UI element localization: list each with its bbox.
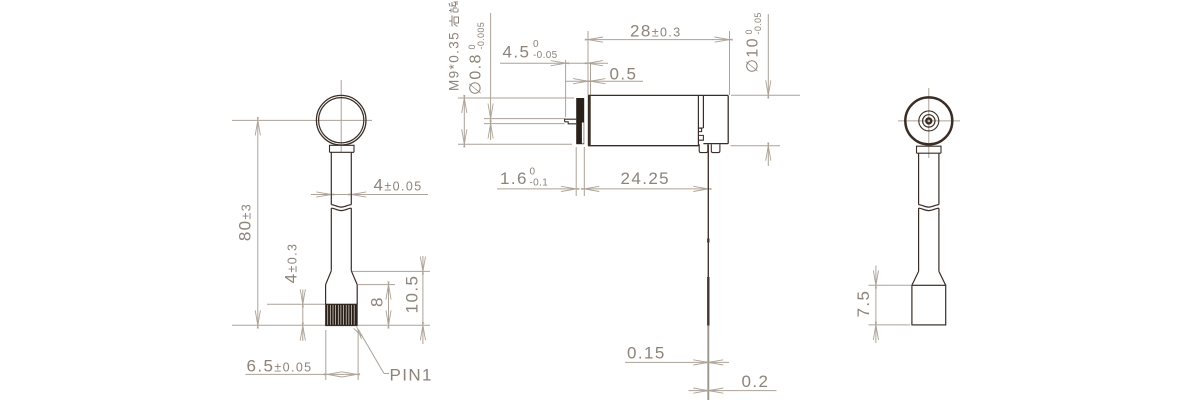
svg-text:0.5: 0.5 xyxy=(610,65,638,84)
svg-text:8: 8 xyxy=(367,296,386,307)
svg-text:4±0.3: 4±0.3 xyxy=(281,243,300,284)
svg-text:80±3: 80±3 xyxy=(236,203,255,241)
svg-text:∅10: ∅10 xyxy=(745,37,762,73)
svg-text:∅0.8: ∅0.8 xyxy=(468,53,485,95)
svg-text:0: 0 xyxy=(533,39,539,50)
svg-text:-0.1: -0.1 xyxy=(530,178,549,189)
svg-text:7.5: 7.5 xyxy=(854,290,873,318)
svg-text:10.5: 10.5 xyxy=(403,275,422,314)
svg-text:24.25: 24.25 xyxy=(621,169,671,188)
svg-text:0.15: 0.15 xyxy=(627,344,666,363)
svg-text:0: 0 xyxy=(530,167,536,178)
svg-text:-0.005: -0.005 xyxy=(476,22,486,50)
svg-text:-0.05: -0.05 xyxy=(753,12,763,34)
svg-text:6.5±0.05: 6.5±0.05 xyxy=(247,357,313,376)
svg-text:0.2: 0.2 xyxy=(742,372,770,391)
svg-text:-0.05: -0.05 xyxy=(533,50,558,61)
svg-text:1.6: 1.6 xyxy=(500,169,528,188)
svg-text:4.5: 4.5 xyxy=(503,43,531,62)
svg-text:4±0.05: 4±0.05 xyxy=(374,176,423,195)
svg-text:PIN1: PIN1 xyxy=(390,366,433,385)
svg-text:M9*0.35: M9*0.35 xyxy=(447,31,462,91)
svg-text:28±0.3: 28±0.3 xyxy=(630,21,682,40)
